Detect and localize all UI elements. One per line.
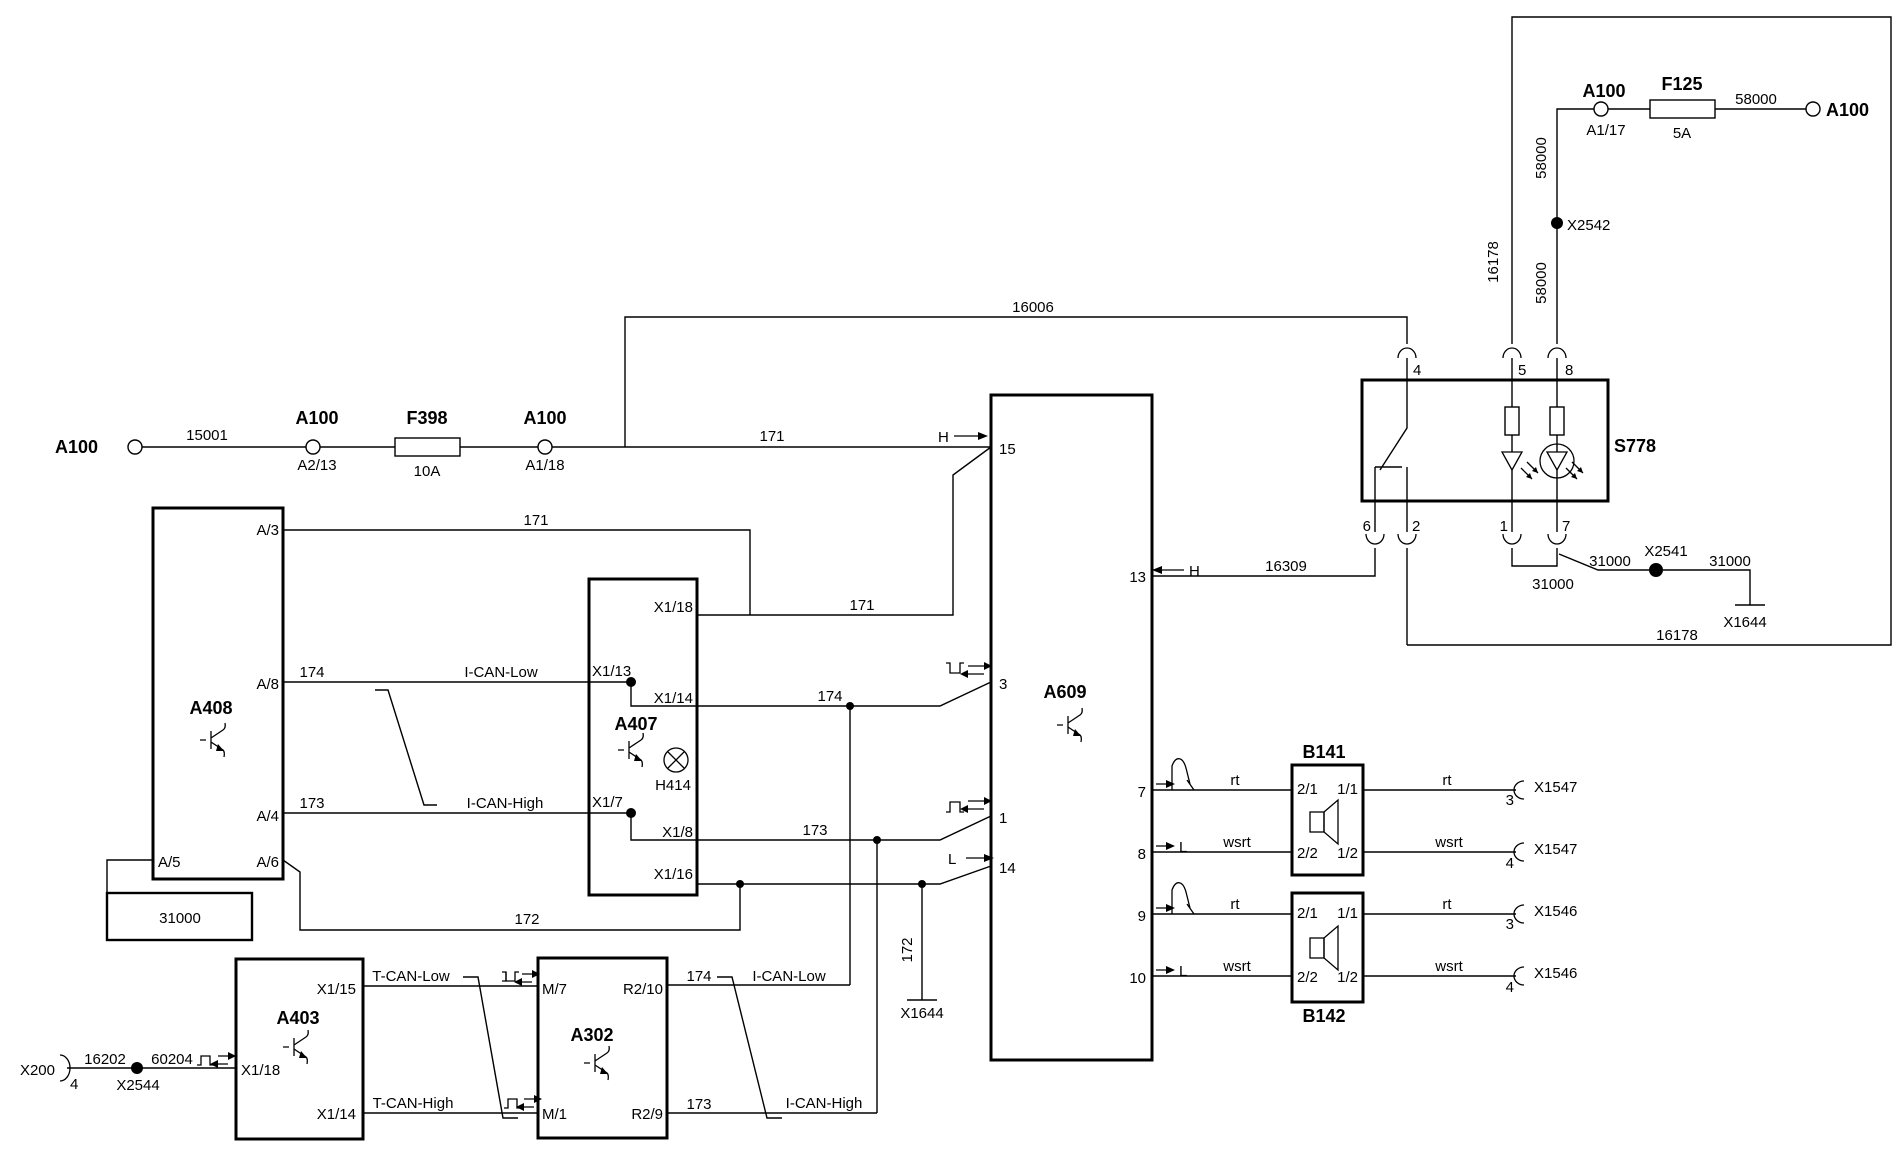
wire-16202-label: 16202 xyxy=(84,1051,126,1068)
connector-arc-pin5 xyxy=(1503,348,1521,358)
x1547-label: X1547 xyxy=(1534,841,1577,858)
wire-31000-label: 31000 xyxy=(1589,553,1631,570)
s778-resistor-1 xyxy=(1505,407,1519,435)
connector-arc-pin2 xyxy=(1398,534,1416,544)
s778-switch xyxy=(1375,358,1407,532)
x1546-label: X1546 xyxy=(1534,965,1577,982)
tcan-high-label: T-CAN-High xyxy=(373,1095,454,1112)
wire-a5-ground xyxy=(107,860,153,893)
wire-color-wsrt: wsrt xyxy=(1222,834,1251,851)
a100-terminal xyxy=(128,440,142,454)
a408-pin-a3: A/3 xyxy=(256,522,279,539)
wire-color-rt: rt xyxy=(1442,896,1452,913)
connector-arc-pin1 xyxy=(1503,534,1521,544)
wire-color-rt: rt xyxy=(1230,772,1240,789)
h414-label: H414 xyxy=(655,777,691,794)
wiring-diagram-page: A100 15001 A100 A2/13 F398 10A A100 A1/1… xyxy=(0,0,1895,1156)
a609-pin-3: 3 xyxy=(999,676,1007,693)
a407-pin-x1-7: X1/7 xyxy=(592,794,623,811)
fuse-f125 xyxy=(1650,100,1715,118)
x1547-pin-3: 3 xyxy=(1506,792,1514,809)
a302-pin-m1: M/1 xyxy=(542,1106,567,1123)
a403-name: A403 xyxy=(276,1008,319,1028)
wire-color-wsrt: wsrt xyxy=(1222,958,1251,975)
a302-name: A302 xyxy=(570,1025,613,1045)
signal-h-label: H xyxy=(938,429,949,446)
s778-pin-4: 4 xyxy=(1413,362,1421,379)
wire-60204-label: 60204 xyxy=(151,1051,193,1068)
wire-173-label: 173 xyxy=(802,822,827,839)
wiring-diagram-canvas: A100 15001 A100 A2/13 F398 10A A100 A1/1… xyxy=(0,0,1895,1156)
x1547-pin-4: 4 xyxy=(1506,855,1514,872)
a403-pin-x1-14: X1/14 xyxy=(317,1106,356,1123)
signal-l-label: L xyxy=(948,851,956,868)
a100-terminal-a1-18 xyxy=(538,440,552,454)
a609-pin-1: 1 xyxy=(999,810,1007,827)
ican-low-label: I-CAN-Low xyxy=(752,968,826,985)
junction-x1644 xyxy=(918,880,926,888)
transistor-icon-a408 xyxy=(200,723,225,757)
ican-high-label: I-CAN-High xyxy=(467,795,544,812)
ican-high-label: I-CAN-High xyxy=(786,1095,863,1112)
a407-pin-x1-14: X1/14 xyxy=(654,690,693,707)
connector-arc-pin4 xyxy=(1398,348,1416,358)
signal-l-label: L xyxy=(1179,963,1187,980)
signal-arrows xyxy=(197,432,1184,1111)
x1546-label: X1546 xyxy=(1534,903,1577,920)
a407-pin-x1-18: X1/18 xyxy=(654,599,693,616)
a1-17-label: A1/17 xyxy=(1586,122,1625,139)
connector-arc-pin6 xyxy=(1366,534,1384,544)
wire-174-label: 174 xyxy=(299,664,324,681)
wire-16178-label-rot: 16178 xyxy=(1485,241,1502,283)
a609-box xyxy=(991,395,1152,1060)
f125-label: F125 xyxy=(1661,74,1702,94)
b141-pin-2-2: 2/2 xyxy=(1297,845,1318,862)
f398-rating-label: 10A xyxy=(414,463,441,480)
a609-pin-10: 10 xyxy=(1129,970,1146,987)
connector-arc-pin8 xyxy=(1548,348,1566,358)
wire-172-label-rot: 172 xyxy=(899,937,916,962)
fuse-f398 xyxy=(395,438,460,456)
a609-pin-13: 13 xyxy=(1129,569,1146,586)
s778-name: S778 xyxy=(1614,436,1656,456)
b142-pin-1-2: 1/2 xyxy=(1337,969,1358,986)
twisted-pair-mark-tcan xyxy=(463,977,518,1118)
a609-pin-14: 14 xyxy=(999,860,1016,877)
x1644-label: X1644 xyxy=(1723,614,1766,631)
s778-pin-6: 6 xyxy=(1363,518,1371,535)
wire-16309 xyxy=(1152,548,1375,576)
a2-13-label: A2/13 xyxy=(297,457,336,474)
x2542-label: X2542 xyxy=(1567,217,1610,234)
h414-lamp-cross xyxy=(668,752,684,768)
wire-171-label: 171 xyxy=(759,428,784,445)
b141-pin-2-1: 2/1 xyxy=(1297,781,1318,798)
signal-l-label: L xyxy=(1179,839,1187,856)
wire-15001-label: 15001 xyxy=(186,427,228,444)
b142-name: B142 xyxy=(1302,1006,1345,1026)
x2542-splice xyxy=(1551,217,1563,229)
wire-174-label: 174 xyxy=(817,688,842,705)
b142-pin-2-1: 2/1 xyxy=(1297,905,1318,922)
signal-h-label: H xyxy=(1189,563,1200,580)
s778-pin-2: 2 xyxy=(1412,518,1420,535)
s778-pin-8: 8 xyxy=(1565,362,1573,379)
x1546-pin-4: 4 xyxy=(1506,979,1514,996)
a609-pin-8: 8 xyxy=(1138,846,1146,863)
a100-label: A100 xyxy=(1582,81,1625,101)
transistor-icon-a609 xyxy=(1057,708,1082,742)
x200-pin-4: 4 xyxy=(70,1076,78,1093)
b141-pin-1-1: 1/1 xyxy=(1337,781,1358,798)
x2541-label: X2541 xyxy=(1644,543,1687,560)
wire-172-label: 172 xyxy=(514,911,539,928)
x1547-label: X1547 xyxy=(1534,779,1577,796)
waveform-icon-pin7 xyxy=(1172,759,1194,790)
wire-171-label: 171 xyxy=(523,512,548,529)
s778-pin-7: 7 xyxy=(1562,518,1570,535)
wire-31000-label: 31000 xyxy=(1709,553,1751,570)
transistor-icon-a302 xyxy=(584,1046,609,1080)
wire-173-label: 173 xyxy=(686,1096,711,1113)
s778-pin-1: 1 xyxy=(1500,518,1508,535)
s778-pin-5: 5 xyxy=(1518,362,1526,379)
f398-label: F398 xyxy=(406,408,447,428)
s778-resistor-2 xyxy=(1550,407,1564,435)
a403-pin-x1-18: X1/18 xyxy=(241,1062,280,1079)
wire-16178-label: 16178 xyxy=(1656,627,1698,644)
wire-16309-label: 16309 xyxy=(1265,558,1307,575)
wire-174-label: 174 xyxy=(686,968,711,985)
led-icon xyxy=(1547,452,1567,470)
wire-16006 xyxy=(625,317,1407,447)
wire-58000-label: 58000 xyxy=(1735,91,1777,108)
a100-terminal-a1-17 xyxy=(1594,102,1608,116)
wire-color-wsrt: wsrt xyxy=(1434,958,1463,975)
wire-color-wsrt: wsrt xyxy=(1434,834,1463,851)
speaker-icon-b141 xyxy=(1310,800,1338,844)
a408-pin-a5: A/5 xyxy=(158,854,181,871)
ican-low-label: I-CAN-Low xyxy=(464,664,538,681)
wire-31000-label: 31000 xyxy=(1532,576,1574,593)
a408-pin-a6: A/6 xyxy=(256,854,279,871)
wire-173-label: 173 xyxy=(299,795,324,812)
a408-pin-a8: A/8 xyxy=(256,676,279,693)
wire-color-rt: rt xyxy=(1230,896,1240,913)
a609-pin-9: 9 xyxy=(1138,908,1146,925)
wire-171-a3-x118 xyxy=(283,447,991,615)
x2544-label: X2544 xyxy=(116,1077,159,1094)
a407-pin-x1-8: X1/8 xyxy=(662,824,693,841)
junction-ican-high xyxy=(873,836,881,844)
ground-31000-label: 31000 xyxy=(159,910,201,927)
x1644-label: X1644 xyxy=(900,1005,943,1022)
a100-label: A100 xyxy=(523,408,566,428)
wire-color-rt: rt xyxy=(1442,772,1452,789)
x2541-splice xyxy=(1649,563,1663,577)
wire-16006-label: 16006 xyxy=(1012,299,1054,316)
a100-label: A100 xyxy=(295,408,338,428)
connector-arc-pin7 xyxy=(1548,534,1566,544)
a1-18-label: A1/18 xyxy=(525,457,564,474)
transistor-icon-a403 xyxy=(283,1030,308,1064)
speaker-icon-b142 xyxy=(1310,926,1338,970)
a302-pin-m7: M/7 xyxy=(542,981,567,998)
waveform-icon-pin9 xyxy=(1172,883,1194,914)
a609-pin-15: 15 xyxy=(999,441,1016,458)
a100-terminal-a2-13 xyxy=(306,440,320,454)
a609-pin-7: 7 xyxy=(1138,784,1146,801)
b141-name: B141 xyxy=(1302,742,1345,762)
transistor-icon-a407 xyxy=(618,733,643,767)
x1546-pin-3: 3 xyxy=(1506,916,1514,933)
junction-ican-low xyxy=(846,702,854,710)
a100-label: A100 xyxy=(1826,100,1869,120)
a408-pin-a4: A/4 xyxy=(256,808,279,825)
a609-name: A609 xyxy=(1043,682,1086,702)
a407-pin-x1-16: X1/16 xyxy=(654,866,693,883)
junction-x1-7 xyxy=(626,808,636,818)
a407-name: A407 xyxy=(614,714,657,734)
wire-58000-label-rot: 58000 xyxy=(1533,137,1550,179)
x200-label: X200 xyxy=(20,1062,55,1079)
a100-terminal-right xyxy=(1806,102,1820,116)
b141-pin-1-2: 1/2 xyxy=(1337,845,1358,862)
wire-58000-label-rot: 58000 xyxy=(1533,262,1550,304)
led-icon xyxy=(1502,452,1522,470)
wire-173-ican-high xyxy=(283,813,991,1113)
a100-label: A100 xyxy=(55,437,98,457)
x2544-splice xyxy=(131,1062,143,1074)
a407-pin-x1-13: X1/13 xyxy=(592,663,631,680)
a403-pin-x1-15: X1/15 xyxy=(317,981,356,998)
twisted-pair-mark-a408 xyxy=(375,690,437,805)
b142-pin-2-2: 2/2 xyxy=(1297,969,1318,986)
tcan-low-label: T-CAN-Low xyxy=(372,968,450,985)
a302-pin-r2-10: R2/10 xyxy=(623,981,663,998)
junction-172 xyxy=(736,880,744,888)
wire-171-label: 171 xyxy=(849,597,874,614)
twisted-pair-mark-ican xyxy=(717,977,782,1118)
a408-name: A408 xyxy=(189,698,232,718)
b142-pin-1-1: 1/1 xyxy=(1337,905,1358,922)
wire-speaker-rows xyxy=(1152,790,1516,976)
a302-pin-r2-9: R2/9 xyxy=(631,1106,663,1123)
f125-rating-label: 5A xyxy=(1673,125,1691,142)
